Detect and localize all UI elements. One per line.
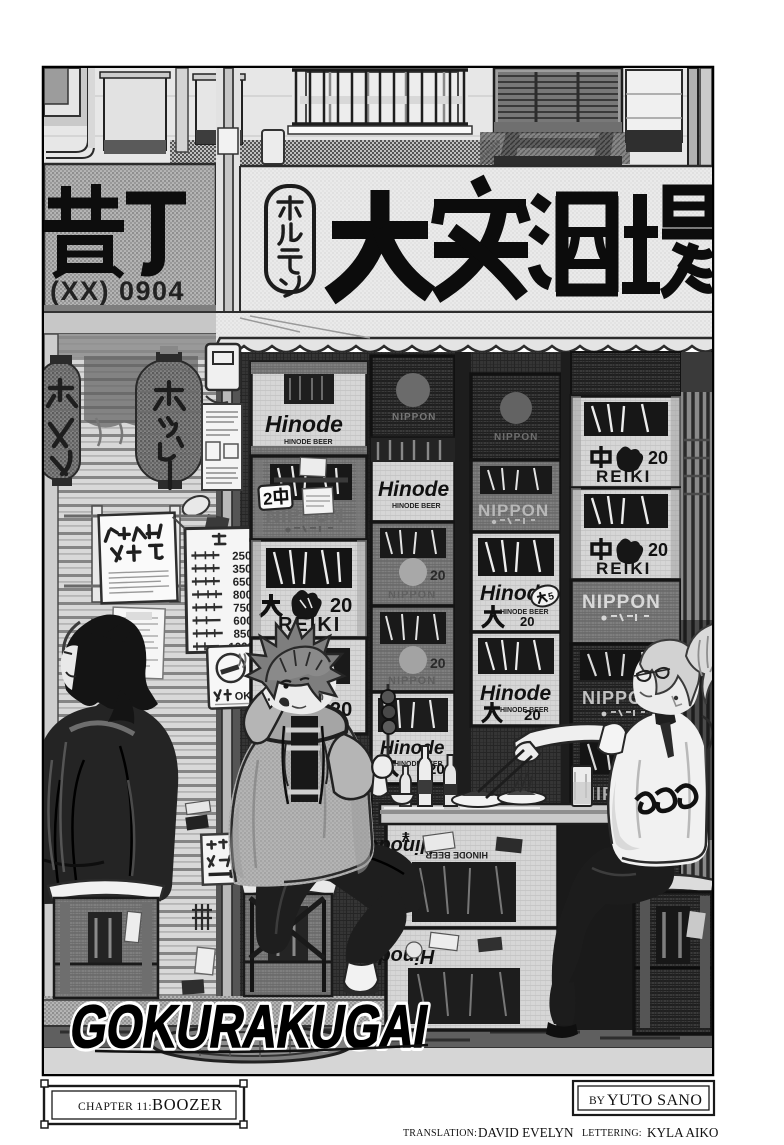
svg-text:HINODE BEER: HINODE BEER xyxy=(425,850,488,860)
svg-text:650: 650 xyxy=(233,576,252,588)
svg-text:20: 20 xyxy=(430,567,446,583)
svg-text:NIPPON: NIPPON xyxy=(478,501,549,520)
svg-text:KYLA AIKO: KYLA AIKO xyxy=(647,1125,718,1140)
svg-text:REIKI: REIKI xyxy=(596,559,651,578)
svg-text:REIKI: REIKI xyxy=(596,467,651,486)
svg-text:NIPPON: NIPPON xyxy=(388,589,436,601)
svg-text:20: 20 xyxy=(520,614,534,629)
svg-text:DAVID EVELYN: DAVID EVELYN xyxy=(478,1125,574,1140)
svg-text:BY: BY xyxy=(589,1095,606,1107)
svg-text:NIPPON: NIPPON xyxy=(582,592,661,613)
svg-text:20: 20 xyxy=(524,707,541,724)
svg-text:TRANSLATION:: TRANSLATION: xyxy=(403,1128,477,1139)
svg-text:GOKURAKUGAI: GOKURAKUGAI xyxy=(66,992,433,1060)
svg-text:20: 20 xyxy=(648,448,668,468)
svg-text:NIPPON: NIPPON xyxy=(392,412,436,423)
svg-text:(XX) 0904: (XX) 0904 xyxy=(50,276,185,306)
svg-text:LETTERING:: LETTERING: xyxy=(582,1128,642,1139)
svg-text:Hinode: Hinode xyxy=(480,682,551,705)
svg-text:OK: OK xyxy=(235,690,252,703)
svg-text:Hinode: Hinode xyxy=(265,411,343,437)
svg-text:250: 250 xyxy=(232,550,251,562)
svg-text:20: 20 xyxy=(648,540,668,560)
svg-text:NIPPON: NIPPON xyxy=(494,432,538,443)
svg-text:YUTO SANO: YUTO SANO xyxy=(607,1092,702,1109)
svg-text:HINODE BEER: HINODE BEER xyxy=(392,503,441,510)
svg-text:¥: ¥ xyxy=(401,828,410,845)
svg-text:Hinode: Hinode xyxy=(380,738,445,759)
svg-text:NIPPON: NIPPON xyxy=(388,675,436,687)
svg-text:350: 350 xyxy=(232,563,251,575)
svg-text:BOOZER: BOOZER xyxy=(152,1095,223,1114)
svg-text:2: 2 xyxy=(262,489,273,509)
svg-text:Hinode: Hinode xyxy=(378,478,449,501)
svg-text:CHAPTER 11:: CHAPTER 11: xyxy=(78,1101,152,1113)
svg-text:HINODE BEER: HINODE BEER xyxy=(284,439,333,446)
svg-text:20: 20 xyxy=(430,655,446,671)
